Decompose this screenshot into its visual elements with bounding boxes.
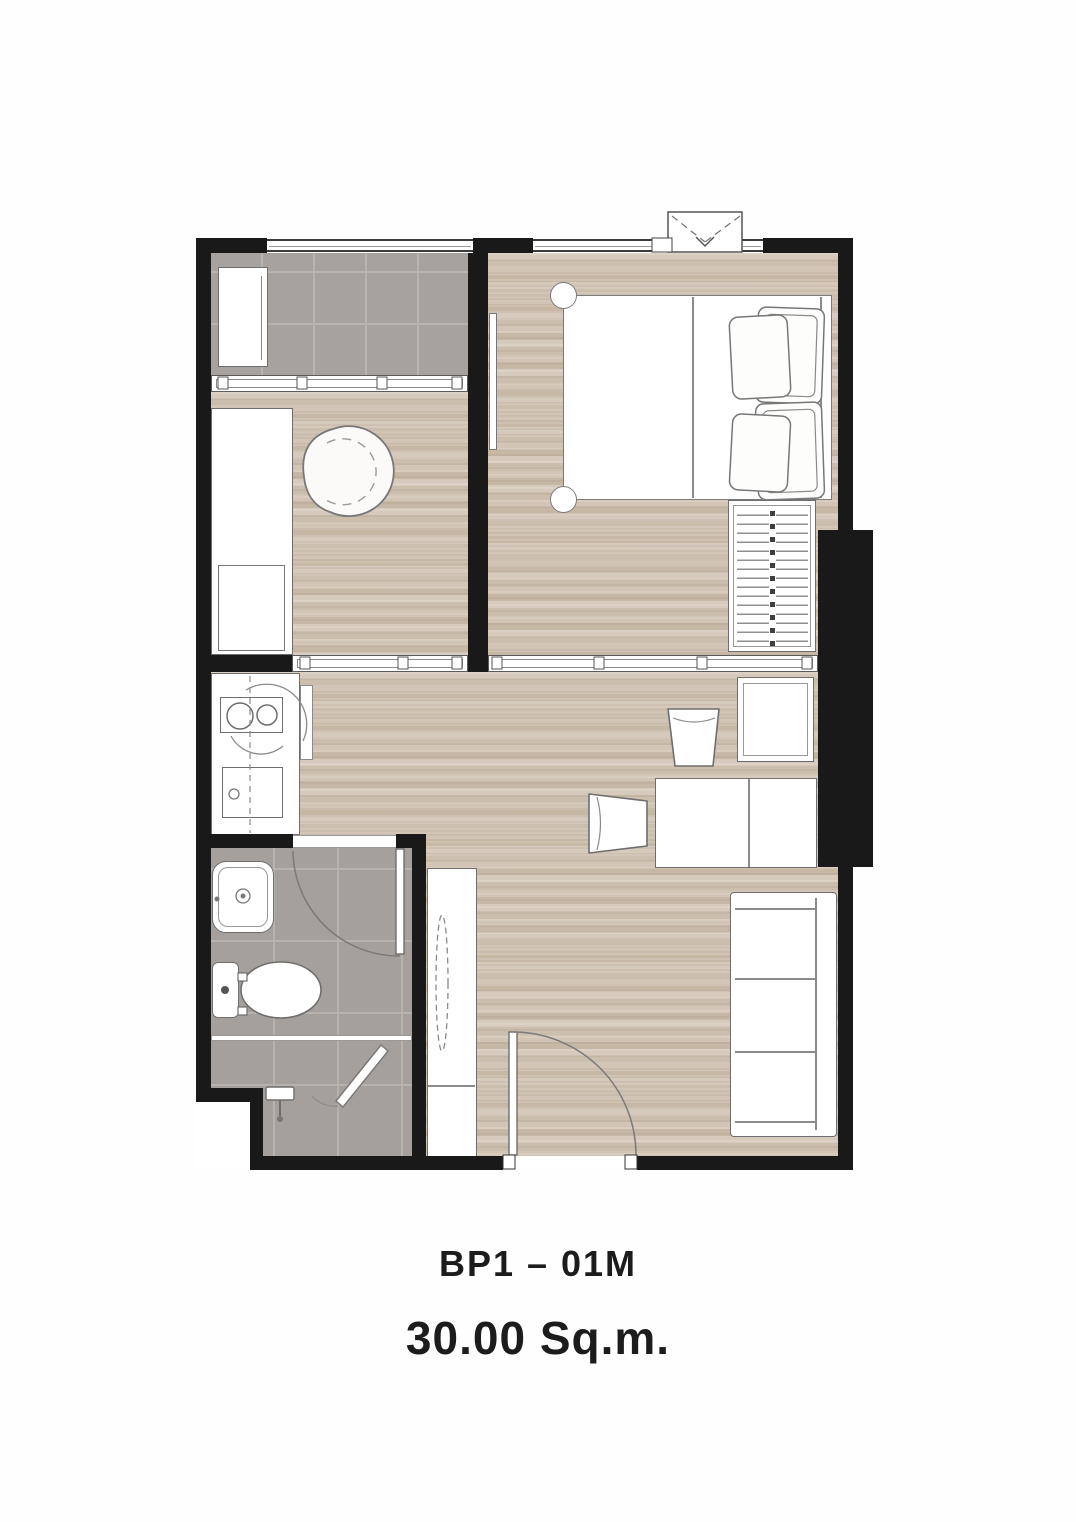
- sliding-door-clips: [218, 377, 812, 669]
- toilet-icon: [221, 962, 321, 1018]
- unit-area-label: 30.00 Sq.m.: [0, 1311, 1076, 1365]
- kitchen-sink-drain: [229, 789, 239, 799]
- bathroom-sink-details: [215, 889, 251, 903]
- entrance-door-icon: [503, 1032, 637, 1169]
- tall-mirror-icon: [436, 915, 448, 1051]
- pillow-icon: [729, 307, 825, 500]
- dining-chair-icon: [589, 794, 647, 853]
- condenser-unit-icon: [668, 212, 742, 252]
- caption: BP1 – 01M 30.00 Sq.m.: [0, 1243, 1076, 1365]
- shower-door-icon: [312, 1045, 388, 1107]
- stove-details: [227, 684, 307, 754]
- dining-chair-icon: [668, 709, 719, 766]
- unit-code-label: BP1 – 01M: [0, 1243, 1076, 1285]
- shower-head-icon: [266, 1087, 294, 1122]
- lounge-chair-icon: [303, 426, 394, 516]
- window-mullion: [652, 238, 672, 252]
- floorplan-canvas: BP1 – 01M 30.00 Sq.m.: [0, 0, 1076, 1522]
- bathroom-door-icon: [293, 849, 404, 956]
